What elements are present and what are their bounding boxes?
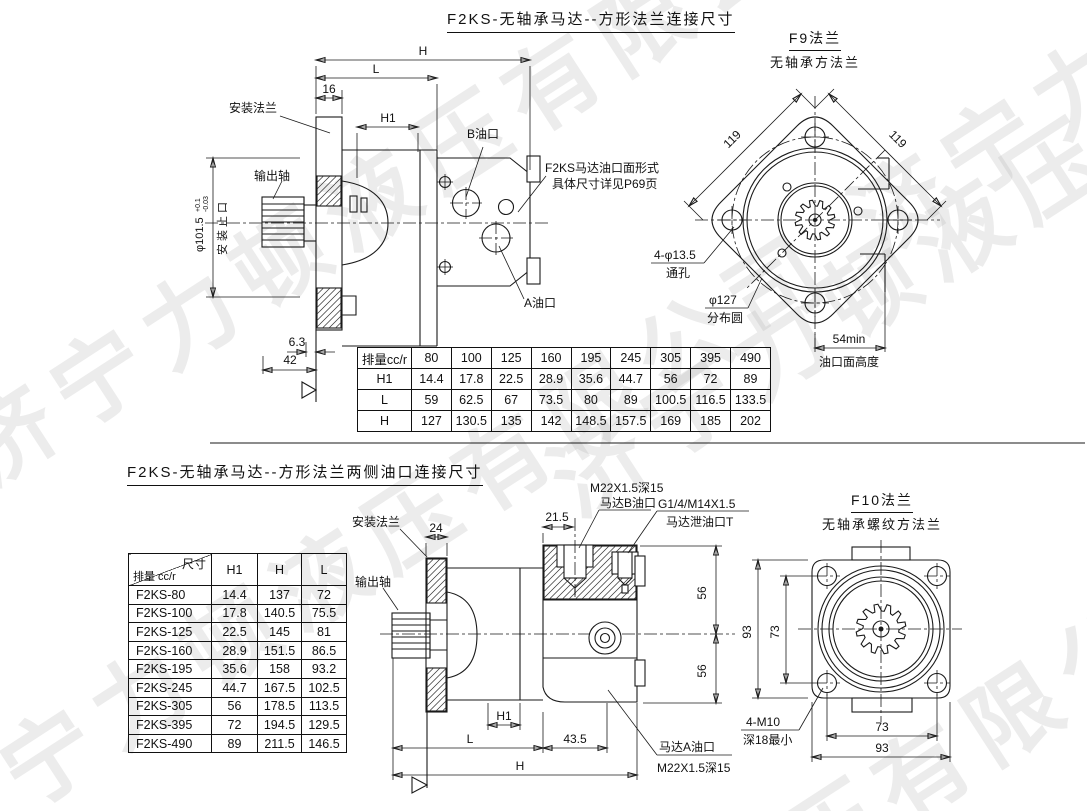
cell: 202 xyxy=(731,411,771,432)
cell: 125 xyxy=(491,348,531,369)
cell: 89 xyxy=(611,390,651,411)
cell: 22.5 xyxy=(212,623,258,642)
dim-54min: 54min xyxy=(833,332,866,346)
table-header-row: 尺寸 排量 cc/r H1 H L xyxy=(129,554,347,586)
cell: 89 xyxy=(212,734,258,753)
cell: 62.5 xyxy=(451,390,491,411)
cell: 28.9 xyxy=(212,641,258,660)
cell: 44.7 xyxy=(611,369,651,390)
cell: 490 xyxy=(731,348,771,369)
cell: 28.9 xyxy=(531,369,571,390)
model-cell: F2KS-195 xyxy=(129,660,212,679)
cell: 145 xyxy=(258,623,302,642)
corner-top-label: 尺寸 xyxy=(182,555,206,572)
model-cell: F2KS-305 xyxy=(129,697,212,716)
cell: 14.4 xyxy=(412,369,452,390)
displacement-table: 排量cc/r80100125160195245305395490H114.417… xyxy=(357,347,771,432)
cell: 178.5 xyxy=(258,697,302,716)
cell: 148.5 xyxy=(571,411,611,432)
mount-flange-label: 安装法兰 xyxy=(229,100,277,115)
cell: 75.5 xyxy=(302,604,347,623)
cell: 395 xyxy=(691,348,731,369)
table-row: F2KS-49089211.5146.5 xyxy=(129,734,347,753)
port-b-thread: M22X1.5深15 xyxy=(590,481,664,495)
port-note-line1: F2KS马达油口面形式 xyxy=(545,161,659,175)
cell: 72 xyxy=(302,586,347,605)
dim-42: 42 xyxy=(283,353,297,367)
dim-24: 24 xyxy=(429,521,443,535)
cell: 86.5 xyxy=(302,641,347,660)
output-shaft-label: 输出轴 xyxy=(355,574,391,589)
cell: 67 xyxy=(491,390,531,411)
cell: 59 xyxy=(412,390,452,411)
output-shaft-label: 输出轴 xyxy=(254,168,290,183)
dim-L: L xyxy=(373,62,380,76)
model-cell: F2KS-245 xyxy=(129,678,212,697)
model-dimension-table: 尺寸 排量 cc/r H1 H L F2KS-8014.413772F2KS-1… xyxy=(128,553,347,753)
port-note-line2: 具体尺寸详见P69页 xyxy=(552,176,657,191)
cell: 142 xyxy=(531,411,571,432)
cell: 135 xyxy=(491,411,531,432)
mount-flange-label: 安装法兰 xyxy=(352,514,400,529)
cell: 195 xyxy=(571,348,611,369)
table-row: 排量cc/r80100125160195245305395490 xyxy=(358,348,771,369)
cell: 35.6 xyxy=(571,369,611,390)
bolt-holes-label: 4-φ13.5 xyxy=(654,248,696,262)
tolerance-plus: +0.1 xyxy=(195,198,202,212)
dim-H1: H1 xyxy=(380,111,396,125)
dim-119-left: 119 xyxy=(720,127,744,151)
cell: 73.5 xyxy=(531,390,571,411)
port-b-label: 马达B油口 xyxy=(600,496,656,510)
col-header-l: L xyxy=(302,554,347,586)
cell: 17.8 xyxy=(451,369,491,390)
port-b-label: B油口 xyxy=(467,127,499,141)
cell: 129.5 xyxy=(302,716,347,735)
cell: 17.8 xyxy=(212,604,258,623)
model-cell: F2KS-125 xyxy=(129,623,212,642)
drain-port-label: 马达泄油口T xyxy=(666,515,734,529)
cell: 100 xyxy=(451,348,491,369)
cell: 305 xyxy=(651,348,691,369)
cell: 211.5 xyxy=(258,734,302,753)
row-header: 排量cc/r xyxy=(358,348,412,369)
cell: 151.5 xyxy=(258,641,302,660)
table-row: F2KS-19535.615893.2 xyxy=(129,660,347,679)
cell: 127 xyxy=(412,411,452,432)
cell: 167.5 xyxy=(258,678,302,697)
cell: 72 xyxy=(212,716,258,735)
table-row: F2KS-8014.413772 xyxy=(129,586,347,605)
col-header-h: H xyxy=(258,554,302,586)
drain-thread: G1/4/M14X1.5 xyxy=(658,497,736,511)
f9-subtitle: 无轴承方法兰 xyxy=(740,52,890,71)
tapped-holes-label: 4-M10 xyxy=(746,715,780,729)
cell: 81 xyxy=(302,623,347,642)
table-row: F2KS-12522.514581 xyxy=(129,623,347,642)
table-row: L5962.56773.58089100.5116.5133.5 xyxy=(358,390,771,411)
bottom-side-view: 安装法兰 输出轴 24 21.5 M22X1.5深15 马达B油口 G1/4/M… xyxy=(352,481,749,793)
row-header: L xyxy=(358,390,412,411)
cell: 116.5 xyxy=(691,390,731,411)
cell: 89 xyxy=(731,369,771,390)
cell: 93.2 xyxy=(302,660,347,679)
dim-56-bottom: 56 xyxy=(695,664,709,678)
dim-L: L xyxy=(467,732,474,746)
table-row: F2KS-10017.8140.575.5 xyxy=(129,604,347,623)
table-row: F2KS-30556178.5113.5 xyxy=(129,697,347,716)
col-header-h1: H1 xyxy=(212,554,258,586)
table-row: H127130.5135142148.5157.5169185202 xyxy=(358,411,771,432)
bolt-circle-label: 分布圆 xyxy=(707,311,743,325)
cell: 130.5 xyxy=(451,411,491,432)
cell: 158 xyxy=(258,660,302,679)
cell: 35.6 xyxy=(212,660,258,679)
section1-title: F2KS-无轴承马达--方形法兰连接尺寸 xyxy=(447,8,735,33)
port-a-thread: M22X1.5深15 xyxy=(657,761,731,775)
cell: 245 xyxy=(611,348,651,369)
f10-title: F10法兰 xyxy=(832,490,932,513)
f10-flange-view: 93 73 73 93 4-M10 深18最小 xyxy=(740,540,962,762)
bolt-circle-dia: φ127 xyxy=(709,293,737,307)
corner-bottom-label: 排量 cc/r xyxy=(133,568,176,584)
cell: 56 xyxy=(212,697,258,716)
dim-21-5: 21.5 xyxy=(545,510,569,524)
dim-H1: H1 xyxy=(496,709,512,723)
table-row: H114.417.822.528.935.644.7567289 xyxy=(358,369,771,390)
row-header: H1 xyxy=(358,369,412,390)
dim-93-horizontal: 93 xyxy=(875,741,889,755)
table-row: F2KS-39572194.5129.5 xyxy=(129,716,347,735)
tolerance-minus: -0.03 xyxy=(203,196,210,212)
model-cell: F2KS-160 xyxy=(129,641,212,660)
dim-73-vertical: 73 xyxy=(768,625,782,639)
model-cell: F2KS-80 xyxy=(129,586,212,605)
cell: 113.5 xyxy=(302,697,347,716)
table-row: F2KS-24544.7167.5102.5 xyxy=(129,678,347,697)
model-cell: F2KS-100 xyxy=(129,604,212,623)
cell: 72 xyxy=(691,369,731,390)
f9-title: F9法兰 xyxy=(765,28,865,51)
model-cell: F2KS-395 xyxy=(129,716,212,735)
dim-H: H xyxy=(516,759,525,773)
dim-119-right: 119 xyxy=(886,127,910,151)
dim-H: H xyxy=(419,44,428,58)
cell: 80 xyxy=(412,348,452,369)
spigot-diameter: φ101.5 xyxy=(194,217,206,252)
through-hole-label: 通孔 xyxy=(666,266,690,280)
cell: 146.5 xyxy=(302,734,347,753)
section2-title: F2KS-无轴承马达--方形法兰两侧油口连接尺寸 xyxy=(127,461,483,486)
cell: 56 xyxy=(651,369,691,390)
cell: 157.5 xyxy=(611,411,651,432)
dim-93-vertical: 93 xyxy=(740,625,754,639)
cell: 80 xyxy=(571,390,611,411)
cell: 14.4 xyxy=(212,586,258,605)
cell: 169 xyxy=(651,411,691,432)
row-header: H xyxy=(358,411,412,432)
table-row: F2KS-16028.9151.586.5 xyxy=(129,641,347,660)
f10-subtitle: 无轴承螺纹方法兰 xyxy=(802,514,962,533)
port-face-height-label: 油口面高度 xyxy=(819,354,879,369)
cell: 102.5 xyxy=(302,678,347,697)
cell: 100.5 xyxy=(651,390,691,411)
cell: 137 xyxy=(258,586,302,605)
drawing-sheet: 济宁力顿液压有限公司 济宁力顿液压有限公司 济宁力顿液压有限公司 济宁力顿液压有… xyxy=(0,0,1087,811)
dim-6-3: 6.3 xyxy=(289,335,306,349)
cell: 185 xyxy=(691,411,731,432)
spigot-label: 安装止口 xyxy=(215,199,229,255)
corner-cell: 尺寸 排量 cc/r xyxy=(129,554,212,586)
dim-56-top: 56 xyxy=(695,586,709,600)
dim-43-5: 43.5 xyxy=(563,732,587,746)
cell: 160 xyxy=(531,348,571,369)
dim-73-horizontal: 73 xyxy=(875,720,889,734)
model-cell: F2KS-490 xyxy=(129,734,212,753)
f9-flange-view: 119 119 4-φ13.5 通孔 φ127 分布圆 54min 油口面高度 xyxy=(651,89,946,369)
port-a-label: 马达A油口 xyxy=(659,740,715,754)
cell: 44.7 xyxy=(212,678,258,697)
dim-16: 16 xyxy=(322,82,336,96)
cell: 140.5 xyxy=(258,604,302,623)
port-a-label: A油口 xyxy=(524,296,556,310)
tapped-depth-label: 深18最小 xyxy=(743,733,792,747)
cell: 22.5 xyxy=(491,369,531,390)
cell: 133.5 xyxy=(731,390,771,411)
cell: 194.5 xyxy=(258,716,302,735)
